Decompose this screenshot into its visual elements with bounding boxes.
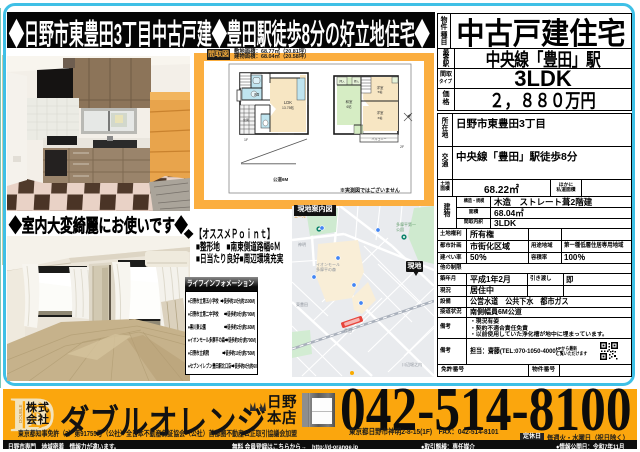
svg-text:※実測図ではございません: ※実測図ではございません [340, 187, 400, 194]
svg-text:和室: 和室 [346, 99, 353, 104]
svg-text:公道6M: 公道6M [273, 176, 289, 183]
svg-text:神明: 神明 [298, 241, 306, 247]
svg-text:玄関: 玄関 [243, 117, 249, 122]
svg-text:洗面: 洗面 [254, 93, 260, 97]
svg-text:6帖: 6帖 [347, 104, 353, 109]
svg-text:13.75帖: 13.75帖 [282, 105, 294, 110]
svg-text:1F: 1F [244, 138, 248, 142]
svg-text:多摩平の森: 多摩平の森 [316, 266, 336, 272]
svg-text:6帖: 6帖 [378, 115, 383, 120]
svg-text:川辺堀之内: 川辺堀之内 [402, 361, 422, 367]
svg-text:洋室: 洋室 [377, 110, 384, 115]
svg-text:豊田: 豊田 [344, 327, 352, 333]
svg-text:公園: 公園 [396, 226, 404, 232]
svg-text:押入: 押入 [354, 80, 360, 84]
svg-text:押入: 押入 [339, 80, 345, 84]
svg-text:DOUBLE: DOUBLE [18, 404, 23, 423]
svg-text:LDK: LDK [284, 100, 292, 105]
svg-text:東豊田: 東豊田 [296, 301, 308, 307]
svg-text:5帖: 5帖 [378, 89, 383, 94]
svg-text:2F: 2F [400, 145, 404, 149]
svg-text:バルコニー: バルコニー [372, 137, 387, 141]
